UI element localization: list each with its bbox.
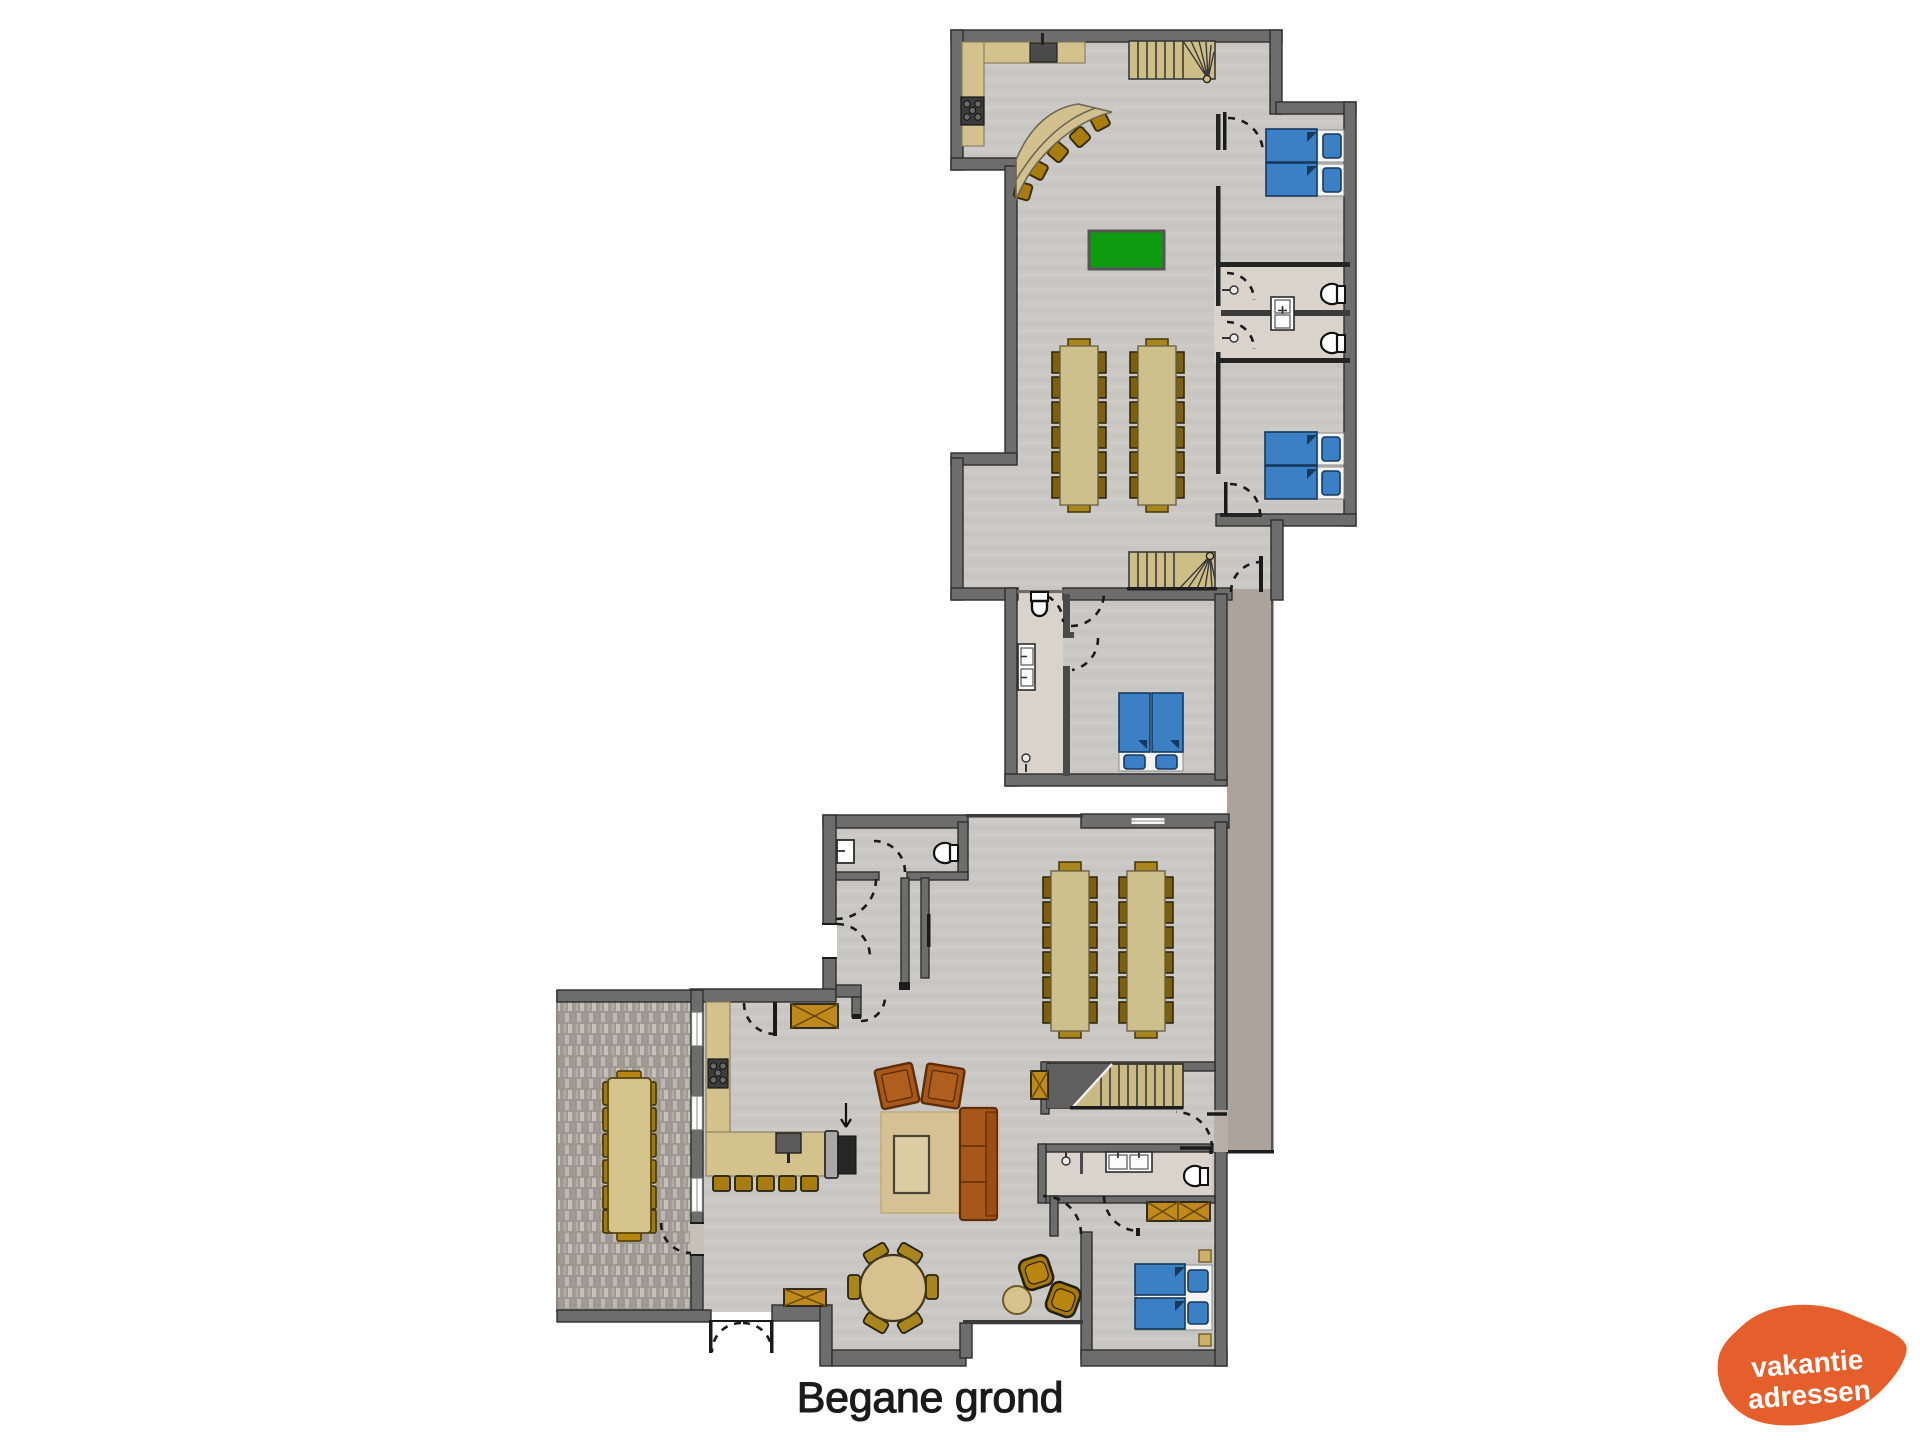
svg-text:Begane grond: Begane grond bbox=[797, 1374, 1064, 1422]
